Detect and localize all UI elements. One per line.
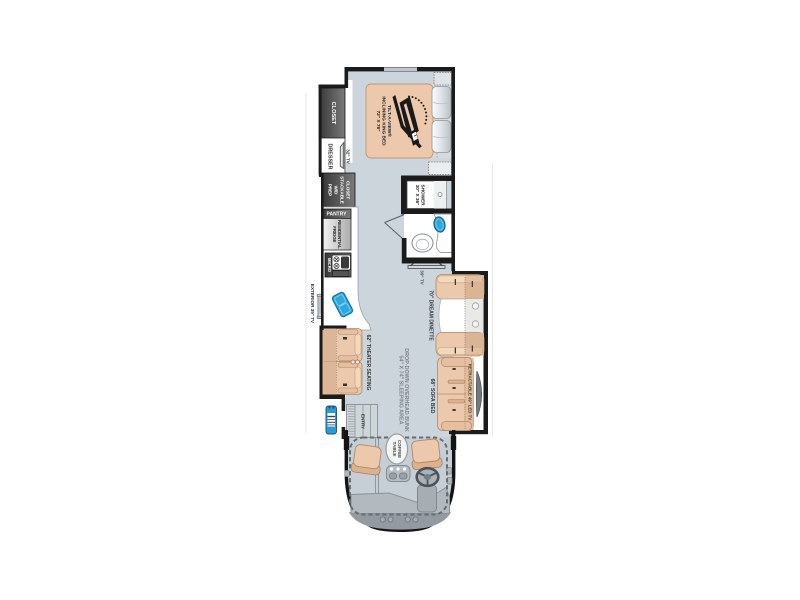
svg-text:DROP-DOWN OVERHEAD BUNK54" X 7: DROP-DOWN OVERHEAD BUNK54" X 74" SLEEPIN… bbox=[397, 348, 409, 432]
svg-text:ENTRY: ENTRY bbox=[360, 414, 365, 429]
svg-text:SHOWER30" X 36": SHOWER30" X 36" bbox=[415, 184, 425, 206]
svg-text:39" TV: 39" TV bbox=[419, 270, 424, 285]
svg-text:EXTERIOR 39" TV: EXTERIOR 39" TV bbox=[310, 284, 315, 324]
svg-text:MICRO: MICRO bbox=[327, 258, 332, 273]
svg-text:32" TV: 32" TV bbox=[346, 149, 351, 164]
svg-text:CLOSET: CLOSET bbox=[330, 102, 336, 125]
svg-text:62" THEATER SEATING: 62" THEATER SEATING bbox=[365, 335, 371, 391]
svg-text:DRESSER: DRESSER bbox=[327, 143, 333, 169]
svg-text:RETRACTABLE 49" LED TV: RETRACTABLE 49" LED TV bbox=[467, 364, 472, 421]
svg-text:PANTRY: PANTRY bbox=[327, 212, 348, 218]
svg-text:COFFEETABLE: COFFEETABLE bbox=[392, 440, 402, 458]
svg-text:70" DREAM DINETTE: 70" DREAM DINETTE bbox=[428, 290, 434, 341]
svg-text:68" SOFA BED: 68" SOFA BED bbox=[429, 379, 435, 414]
